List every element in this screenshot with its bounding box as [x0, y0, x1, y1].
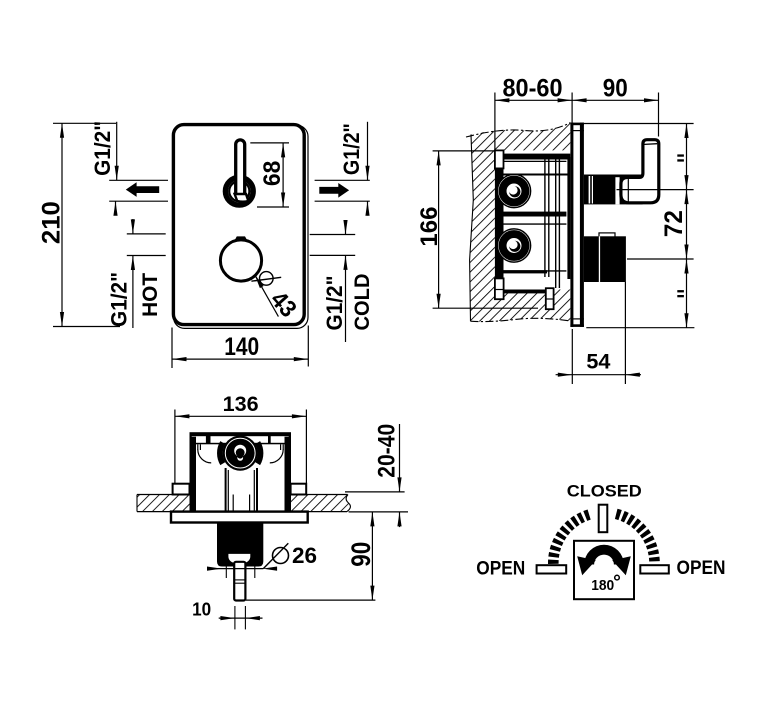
svg-text:CLOSED: CLOSED [567, 481, 642, 500]
svg-text:COLD: COLD [351, 274, 374, 331]
svg-text:G1/2": G1/2" [322, 276, 347, 331]
svg-text:72: 72 [660, 210, 688, 237]
svg-text:140: 140 [224, 333, 259, 361]
svg-text:G1/2": G1/2" [107, 272, 132, 327]
svg-text:20-40: 20-40 [374, 424, 401, 478]
svg-text:OPEN: OPEN [476, 559, 525, 580]
svg-text:G1/2": G1/2" [339, 123, 364, 175]
svg-text:180: 180 [591, 577, 614, 594]
svg-text:HOT: HOT [139, 273, 162, 317]
svg-text:OPEN: OPEN [677, 558, 726, 579]
svg-text:166: 166 [416, 207, 443, 247]
svg-text:26: 26 [292, 543, 317, 568]
svg-text:136: 136 [223, 393, 259, 416]
svg-text:G1/2": G1/2" [90, 121, 115, 176]
svg-text:10: 10 [192, 599, 211, 619]
svg-text:210: 210 [38, 201, 66, 244]
svg-text:90: 90 [603, 75, 628, 103]
svg-text:90: 90 [346, 542, 376, 567]
svg-text:54: 54 [586, 351, 610, 374]
svg-text:68: 68 [259, 161, 286, 187]
svg-text:80-60: 80-60 [503, 75, 563, 103]
